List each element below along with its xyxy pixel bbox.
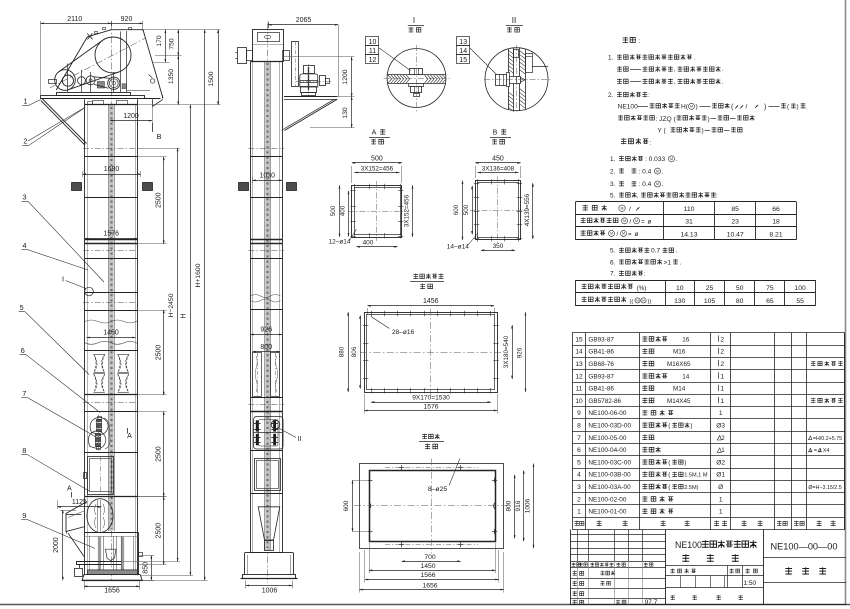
svg-text:31: 31 xyxy=(685,219,693,226)
svg-text:400: 400 xyxy=(339,205,346,216)
svg-text:500: 500 xyxy=(463,204,470,215)
svg-text:15: 15 xyxy=(459,57,467,64)
svg-text:2.: 2. xyxy=(610,168,616,175)
svg-text:9: 9 xyxy=(22,511,26,520)
svg-text:400: 400 xyxy=(363,240,374,247)
svg-text:6.: 6. xyxy=(610,259,616,266)
svg-text:NE100-06-00: NE100-06-00 xyxy=(588,410,626,417)
svg-text:/: / xyxy=(629,206,631,213)
svg-text:800: 800 xyxy=(506,500,513,511)
svg-text:10: 10 xyxy=(369,39,377,46)
svg-text:2500: 2500 xyxy=(155,192,162,208)
svg-text:GB93-87: GB93-87 xyxy=(588,373,614,380)
svg-text:7: 7 xyxy=(22,389,26,398)
svg-text:23: 23 xyxy=(731,219,739,226)
svg-text:14.13: 14.13 xyxy=(680,231,697,238)
svg-text:A: A xyxy=(372,130,377,137)
svg-text:5.: 5. xyxy=(610,248,616,255)
svg-text:GB41-86: GB41-86 xyxy=(588,386,614,393)
svg-text:5: 5 xyxy=(20,303,24,312)
svg-text:55: 55 xyxy=(796,298,804,305)
svg-text:1006: 1006 xyxy=(524,498,531,513)
svg-text:.: . xyxy=(676,156,678,163)
svg-text:2.: 2. xyxy=(608,92,614,99)
svg-text:600: 600 xyxy=(343,500,350,511)
svg-text:1:50: 1:50 xyxy=(743,580,756,587)
svg-text:100: 100 xyxy=(794,285,806,292)
svg-text:): ) xyxy=(696,104,698,111)
svg-text:12: 12 xyxy=(369,57,377,64)
svg-text:14: 14 xyxy=(459,48,467,55)
svg-text:97.7: 97.7 xyxy=(645,599,658,606)
svg-text:0.7: 0.7 xyxy=(651,248,660,255)
svg-text:NE100-03A-00: NE100-03A-00 xyxy=(588,484,631,491)
svg-text:2065: 2065 xyxy=(296,17,312,24)
svg-text:M: M xyxy=(656,182,659,186)
svg-text:9: 9 xyxy=(577,410,581,417)
svg-text:A: A xyxy=(67,486,72,493)
svg-text:A: A xyxy=(127,433,132,440)
svg-text:H(: H( xyxy=(681,104,689,111)
svg-text:.: . xyxy=(662,181,664,188)
svg-text:14: 14 xyxy=(575,349,583,356)
svg-text:=: = xyxy=(641,219,645,226)
svg-text:=H/0.2+5.75: =H/0.2+5.75 xyxy=(813,436,842,442)
svg-text:1200: 1200 xyxy=(123,113,139,120)
svg-text:M: M xyxy=(610,232,613,236)
svg-text:920: 920 xyxy=(121,16,133,23)
svg-text:1.5M,1 M: 1.5M,1 M xyxy=(684,473,708,479)
svg-text:): ) xyxy=(684,459,686,466)
svg-text:.: . xyxy=(676,248,678,255)
svg-text:50: 50 xyxy=(736,285,744,292)
svg-text:1450: 1450 xyxy=(420,563,435,570)
svg-text:M: M xyxy=(635,219,638,223)
svg-text::: : xyxy=(639,38,641,45)
svg-text:1350: 1350 xyxy=(168,69,175,84)
svg-text:3X180=540: 3X180=540 xyxy=(503,335,510,368)
svg-text:H: H xyxy=(181,313,188,318)
svg-text:M: M xyxy=(656,169,659,173)
svg-text:=: = xyxy=(628,231,632,238)
svg-text:28–ø16: 28–ø16 xyxy=(392,329,415,336)
svg-text:): ) xyxy=(690,422,692,429)
svg-text:130: 130 xyxy=(674,298,686,305)
svg-text:13: 13 xyxy=(459,39,467,46)
svg-text:B: B xyxy=(493,130,498,137)
svg-text:450: 450 xyxy=(492,155,504,162)
svg-text:850: 850 xyxy=(143,562,150,574)
svg-text:1: 1 xyxy=(720,386,724,393)
svg-text:1030: 1030 xyxy=(259,173,275,180)
svg-text:1: 1 xyxy=(721,447,725,454)
svg-text:NE100: NE100 xyxy=(618,104,638,111)
svg-text:1500: 1500 xyxy=(208,71,215,86)
svg-text:600: 600 xyxy=(453,204,460,215)
svg-text:2: 2 xyxy=(720,336,724,343)
svg-text:1566: 1566 xyxy=(420,572,435,579)
svg-text:1: 1 xyxy=(720,373,724,380)
svg-text:16: 16 xyxy=(682,336,690,343)
svg-text:4: 4 xyxy=(22,241,26,250)
svg-text:1.: 1. xyxy=(610,156,616,163)
svg-text:I: I xyxy=(62,275,64,284)
svg-text:2500: 2500 xyxy=(155,523,162,539)
svg-text:.: . xyxy=(662,168,664,175)
svg-text:2500: 2500 xyxy=(155,446,162,462)
svg-text:800: 800 xyxy=(260,344,272,351)
svg-text:916: 916 xyxy=(515,500,522,511)
svg-text:II: II xyxy=(298,436,302,443)
svg-text:NE100-01-00: NE100-01-00 xyxy=(588,509,626,516)
svg-text:1006: 1006 xyxy=(262,588,278,595)
svg-text:1.: 1. xyxy=(608,55,614,62)
svg-text:M: M xyxy=(670,157,673,161)
svg-text:9X170=1530: 9X170=1530 xyxy=(412,394,450,401)
svg-text:2500: 2500 xyxy=(155,345,162,361)
svg-text:: 0.4: : 0.4 xyxy=(639,168,652,175)
svg-text:NE100-03D-00: NE100-03D-00 xyxy=(588,422,631,429)
svg-text:Ø1: Ø1 xyxy=(716,472,725,479)
svg-text:2110: 2110 xyxy=(67,16,82,23)
svg-text:1576: 1576 xyxy=(103,230,119,237)
svg-text:Ø: Ø xyxy=(718,484,723,491)
svg-text:((: (( xyxy=(630,299,634,305)
svg-text:: 0.033: : 0.033 xyxy=(645,156,665,163)
svg-text:2: 2 xyxy=(23,137,27,146)
svg-text:2: 2 xyxy=(721,435,725,442)
svg-text:: 0.4: : 0.4 xyxy=(639,181,652,188)
svg-text:GB93-87: GB93-87 xyxy=(588,336,614,343)
svg-text:350: 350 xyxy=(493,243,504,250)
svg-text:11: 11 xyxy=(369,48,376,55)
svg-text:1: 1 xyxy=(719,410,723,417)
svg-text:NE100-02-00: NE100-02-00 xyxy=(588,496,626,503)
svg-text:M14: M14 xyxy=(673,386,686,393)
svg-text:15: 15 xyxy=(575,336,583,343)
svg-text:(%): (%) xyxy=(637,285,647,292)
svg-text:Ø2: Ø2 xyxy=(716,459,725,466)
svg-text:11: 11 xyxy=(576,386,583,393)
svg-text:X4: X4 xyxy=(823,448,830,454)
svg-text:130: 130 xyxy=(342,107,349,119)
svg-text:5: 5 xyxy=(577,459,581,466)
svg-text:5.: 5. xyxy=(610,192,616,199)
svg-text:GB41-86: GB41-86 xyxy=(588,349,614,356)
svg-text:3X152=456: 3X152=456 xyxy=(361,165,394,172)
svg-text:M14X45: M14X45 xyxy=(667,398,691,405)
svg-text:80: 80 xyxy=(736,298,744,305)
svg-text:500: 500 xyxy=(371,155,383,162)
svg-text:3X152=456: 3X152=456 xyxy=(403,194,410,227)
svg-text:10: 10 xyxy=(676,285,684,292)
svg-text:25: 25 xyxy=(706,285,714,292)
svg-text:14: 14 xyxy=(682,373,690,380)
svg-text:B: B xyxy=(157,132,162,141)
svg-text:II: II xyxy=(512,16,516,25)
svg-text:1450: 1450 xyxy=(103,329,119,336)
svg-text:ø: ø xyxy=(635,231,639,238)
svg-text:10: 10 xyxy=(575,398,583,405)
svg-text:I: I xyxy=(413,16,415,25)
svg-text:12–ø14: 12–ø14 xyxy=(328,239,350,246)
svg-text:14–ø14: 14–ø14 xyxy=(447,243,469,250)
svg-text:Ø3: Ø3 xyxy=(716,422,725,429)
svg-text:NE100: NE100 xyxy=(675,540,702,550)
svg-text:3.: 3. xyxy=(610,181,616,188)
svg-text:3X136=408: 3X136=408 xyxy=(482,165,515,172)
svg-text:NE100-05-00: NE100-05-00 xyxy=(588,435,626,442)
svg-text:85: 85 xyxy=(731,206,739,213)
svg-text:/: / xyxy=(617,231,619,238)
svg-text:>1: >1 xyxy=(664,259,672,266)
svg-text:12: 12 xyxy=(575,373,583,380)
svg-text:750: 750 xyxy=(169,38,176,50)
svg-text:18: 18 xyxy=(772,219,780,226)
svg-text::: : xyxy=(650,139,652,146)
svg-text:=: = xyxy=(814,448,817,454)
svg-text:6: 6 xyxy=(21,346,25,355)
svg-text:/: / xyxy=(630,219,632,226)
svg-text:H−2450: H−2450 xyxy=(168,293,175,317)
svg-text:GB68-76: GB68-76 xyxy=(588,361,614,368)
svg-text:8–ø25: 8–ø25 xyxy=(428,486,447,493)
svg-text:Y (: Y ( xyxy=(657,128,666,135)
svg-text:1680: 1680 xyxy=(104,166,120,173)
svg-text:1: 1 xyxy=(577,509,581,516)
svg-text:): ) xyxy=(764,102,766,111)
svg-text:)): )) xyxy=(648,299,652,305)
svg-text:/: / xyxy=(746,104,748,111)
svg-text:7: 7 xyxy=(577,435,581,442)
svg-text:1: 1 xyxy=(719,509,723,516)
svg-text:2.5M): 2.5M) xyxy=(684,485,698,491)
svg-text:8: 8 xyxy=(22,446,26,455)
svg-text:3: 3 xyxy=(22,193,26,202)
svg-text:105: 105 xyxy=(704,298,716,305)
svg-text:1456: 1456 xyxy=(423,298,439,305)
svg-text:ø: ø xyxy=(648,219,652,226)
svg-text:926: 926 xyxy=(260,327,272,334)
svg-text:7.: 7. xyxy=(610,271,616,278)
svg-text:M: M xyxy=(690,105,693,109)
svg-text:75: 75 xyxy=(766,285,774,292)
svg-text:4X139=556: 4X139=556 xyxy=(524,193,531,226)
svg-text:M: M xyxy=(623,219,626,223)
svg-text:): ) xyxy=(702,128,704,135)
svg-text:1656: 1656 xyxy=(104,588,120,595)
svg-text:M16: M16 xyxy=(673,349,686,356)
svg-text:1656: 1656 xyxy=(422,583,437,590)
svg-text:1576: 1576 xyxy=(423,403,438,410)
svg-text:6: 6 xyxy=(577,447,581,454)
svg-text:2000: 2000 xyxy=(53,537,60,553)
svg-text:2: 2 xyxy=(577,496,581,503)
svg-text:NE100—00—00: NE100—00—00 xyxy=(771,542,838,552)
svg-text:2: 2 xyxy=(720,361,724,368)
svg-text:): ) xyxy=(708,116,710,123)
svg-text:8: 8 xyxy=(577,422,581,429)
svg-text:): ) xyxy=(797,104,799,111)
svg-text:GB5782-86: GB5782-86 xyxy=(588,398,621,405)
svg-text:NE100-03B-00: NE100-03B-00 xyxy=(588,472,631,479)
svg-text:3: 3 xyxy=(577,484,581,491)
svg-text:1: 1 xyxy=(719,496,723,503)
svg-text:806: 806 xyxy=(351,346,358,357)
svg-text:NE100-03C-00: NE100-03C-00 xyxy=(588,459,631,466)
svg-text:926: 926 xyxy=(516,347,523,358)
svg-text:M16X65: M16X65 xyxy=(667,361,691,368)
svg-text:4: 4 xyxy=(577,472,581,479)
svg-text:: JZQ (: : JZQ ( xyxy=(656,116,677,123)
svg-text:2: 2 xyxy=(720,349,724,356)
svg-text:NE100-04-00: NE100-04-00 xyxy=(588,447,626,454)
svg-text:.: . xyxy=(680,259,682,266)
svg-text:10.47: 10.47 xyxy=(727,231,744,238)
svg-text:1: 1 xyxy=(23,97,27,106)
svg-text:M: M xyxy=(621,206,624,210)
svg-text:500: 500 xyxy=(330,205,337,216)
svg-text:700: 700 xyxy=(424,554,436,561)
svg-text:110: 110 xyxy=(684,206,695,213)
svg-text:M: M xyxy=(622,232,625,236)
svg-text:1200: 1200 xyxy=(342,69,349,84)
svg-text:1: 1 xyxy=(720,398,724,405)
svg-text:66: 66 xyxy=(772,206,780,213)
svg-text:65: 65 xyxy=(766,298,774,305)
svg-text:8.21: 8.21 xyxy=(769,231,782,238)
svg-text:170: 170 xyxy=(156,35,163,47)
svg-text:880: 880 xyxy=(338,346,345,357)
svg-text:13: 13 xyxy=(575,361,583,368)
svg-text:H+1600: H+1600 xyxy=(195,263,202,287)
svg-text:Ø=H−3.15/2.5: Ø=H−3.15/2.5 xyxy=(808,485,841,491)
svg-text:1125: 1125 xyxy=(72,499,87,506)
